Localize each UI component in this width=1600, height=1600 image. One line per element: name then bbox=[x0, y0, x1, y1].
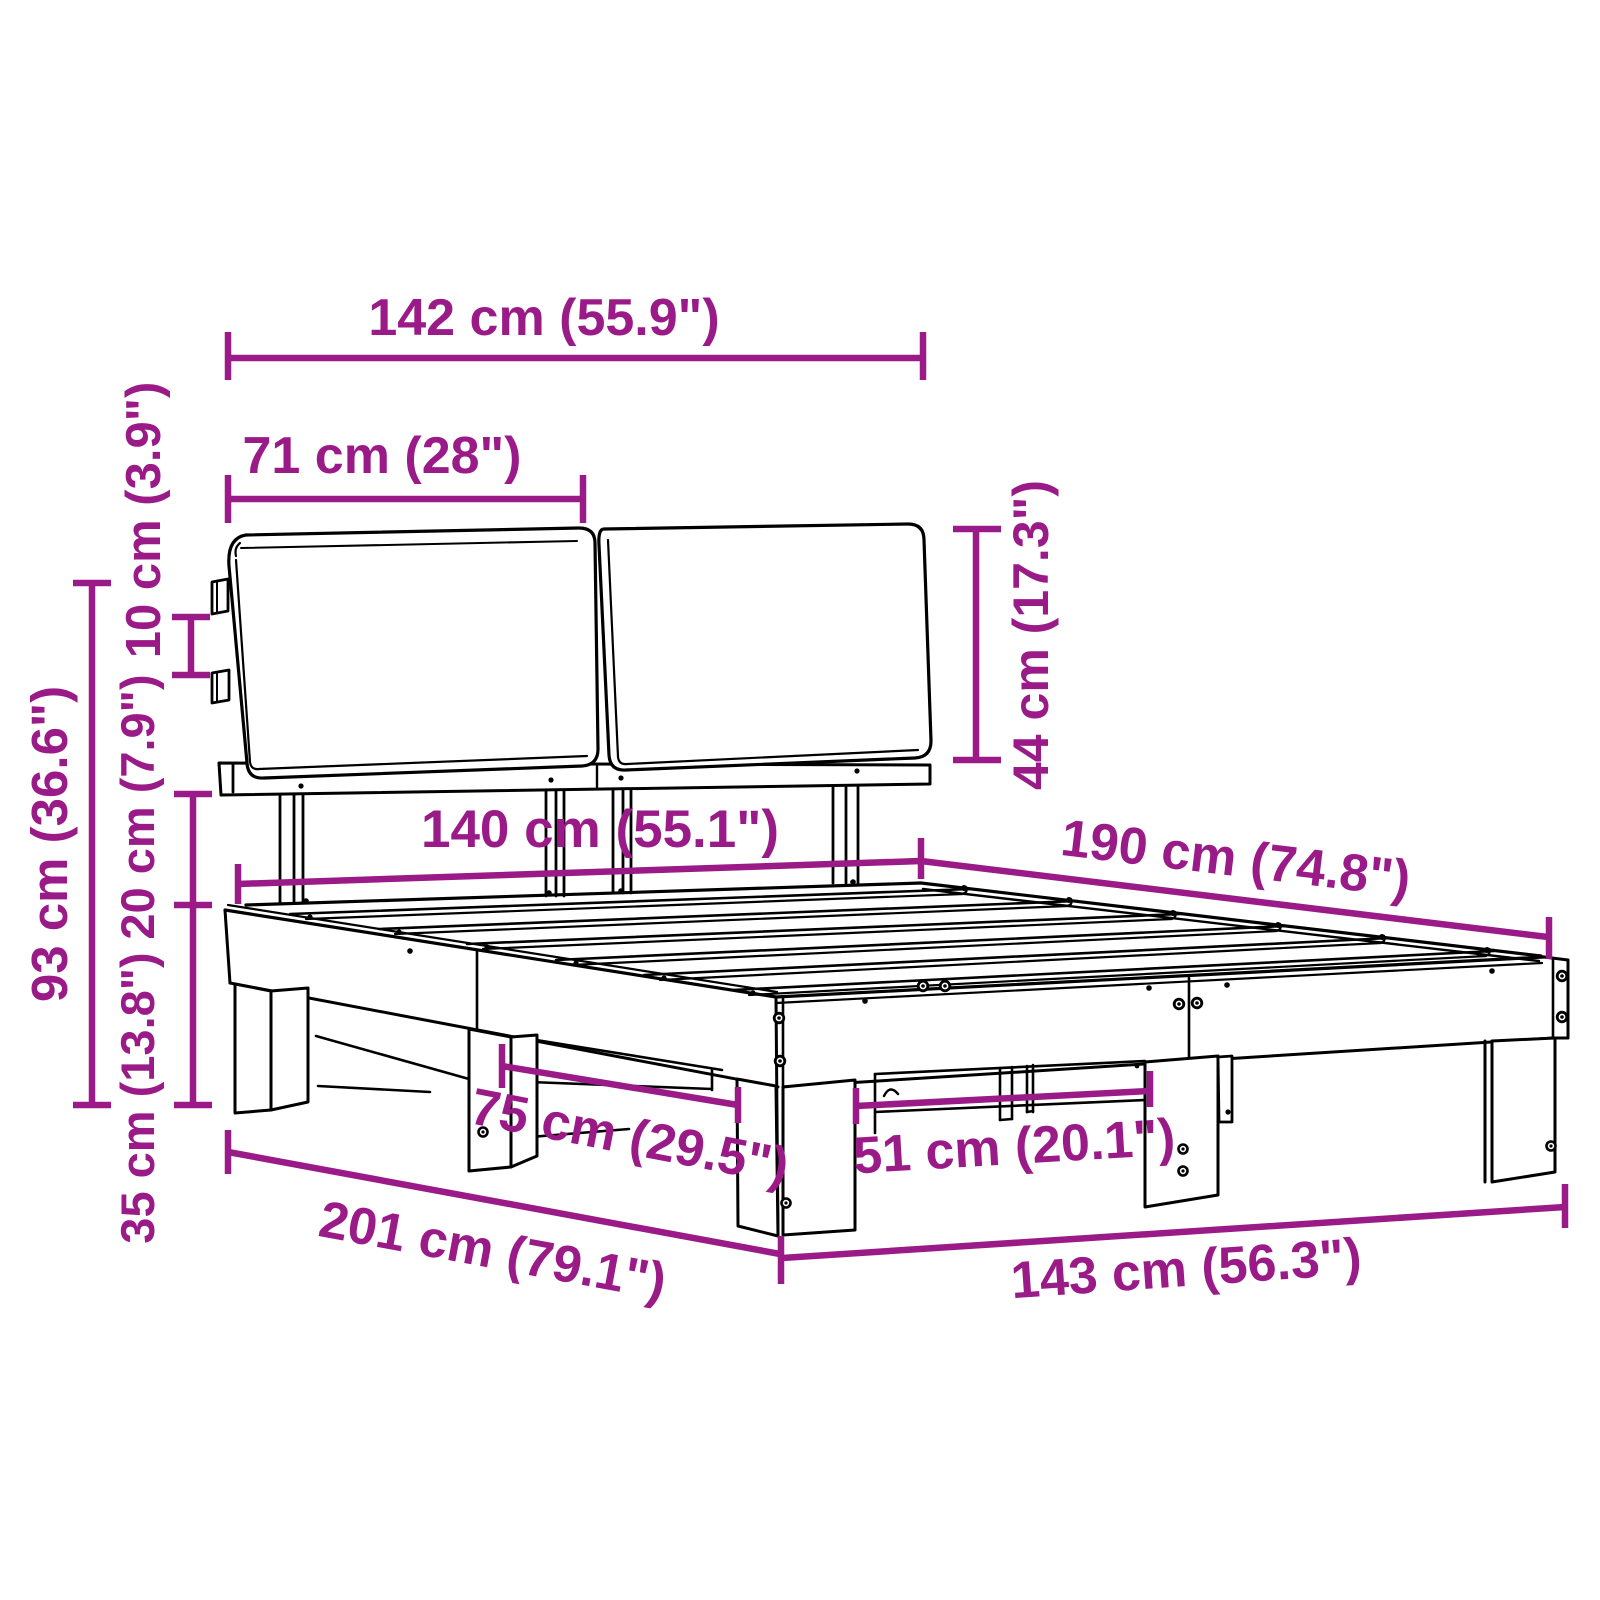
svg-text:10 cm (3.9"): 10 cm (3.9") bbox=[117, 382, 171, 659]
svg-text:71 cm (28"): 71 cm (28") bbox=[242, 427, 521, 485]
svg-text:142 cm (55.9"): 142 cm (55.9") bbox=[368, 289, 719, 347]
svg-text:44 cm (17.3"): 44 cm (17.3") bbox=[1003, 480, 1059, 790]
svg-text:20 cm (7.9"): 20 cm (7.9") bbox=[111, 674, 164, 939]
svg-text:140 cm (55.1"): 140 cm (55.1") bbox=[421, 800, 779, 859]
svg-text:35 cm (13.8"): 35 cm (13.8") bbox=[111, 952, 164, 1243]
svg-text:93 cm (36.6"): 93 cm (36.6") bbox=[21, 686, 78, 1002]
